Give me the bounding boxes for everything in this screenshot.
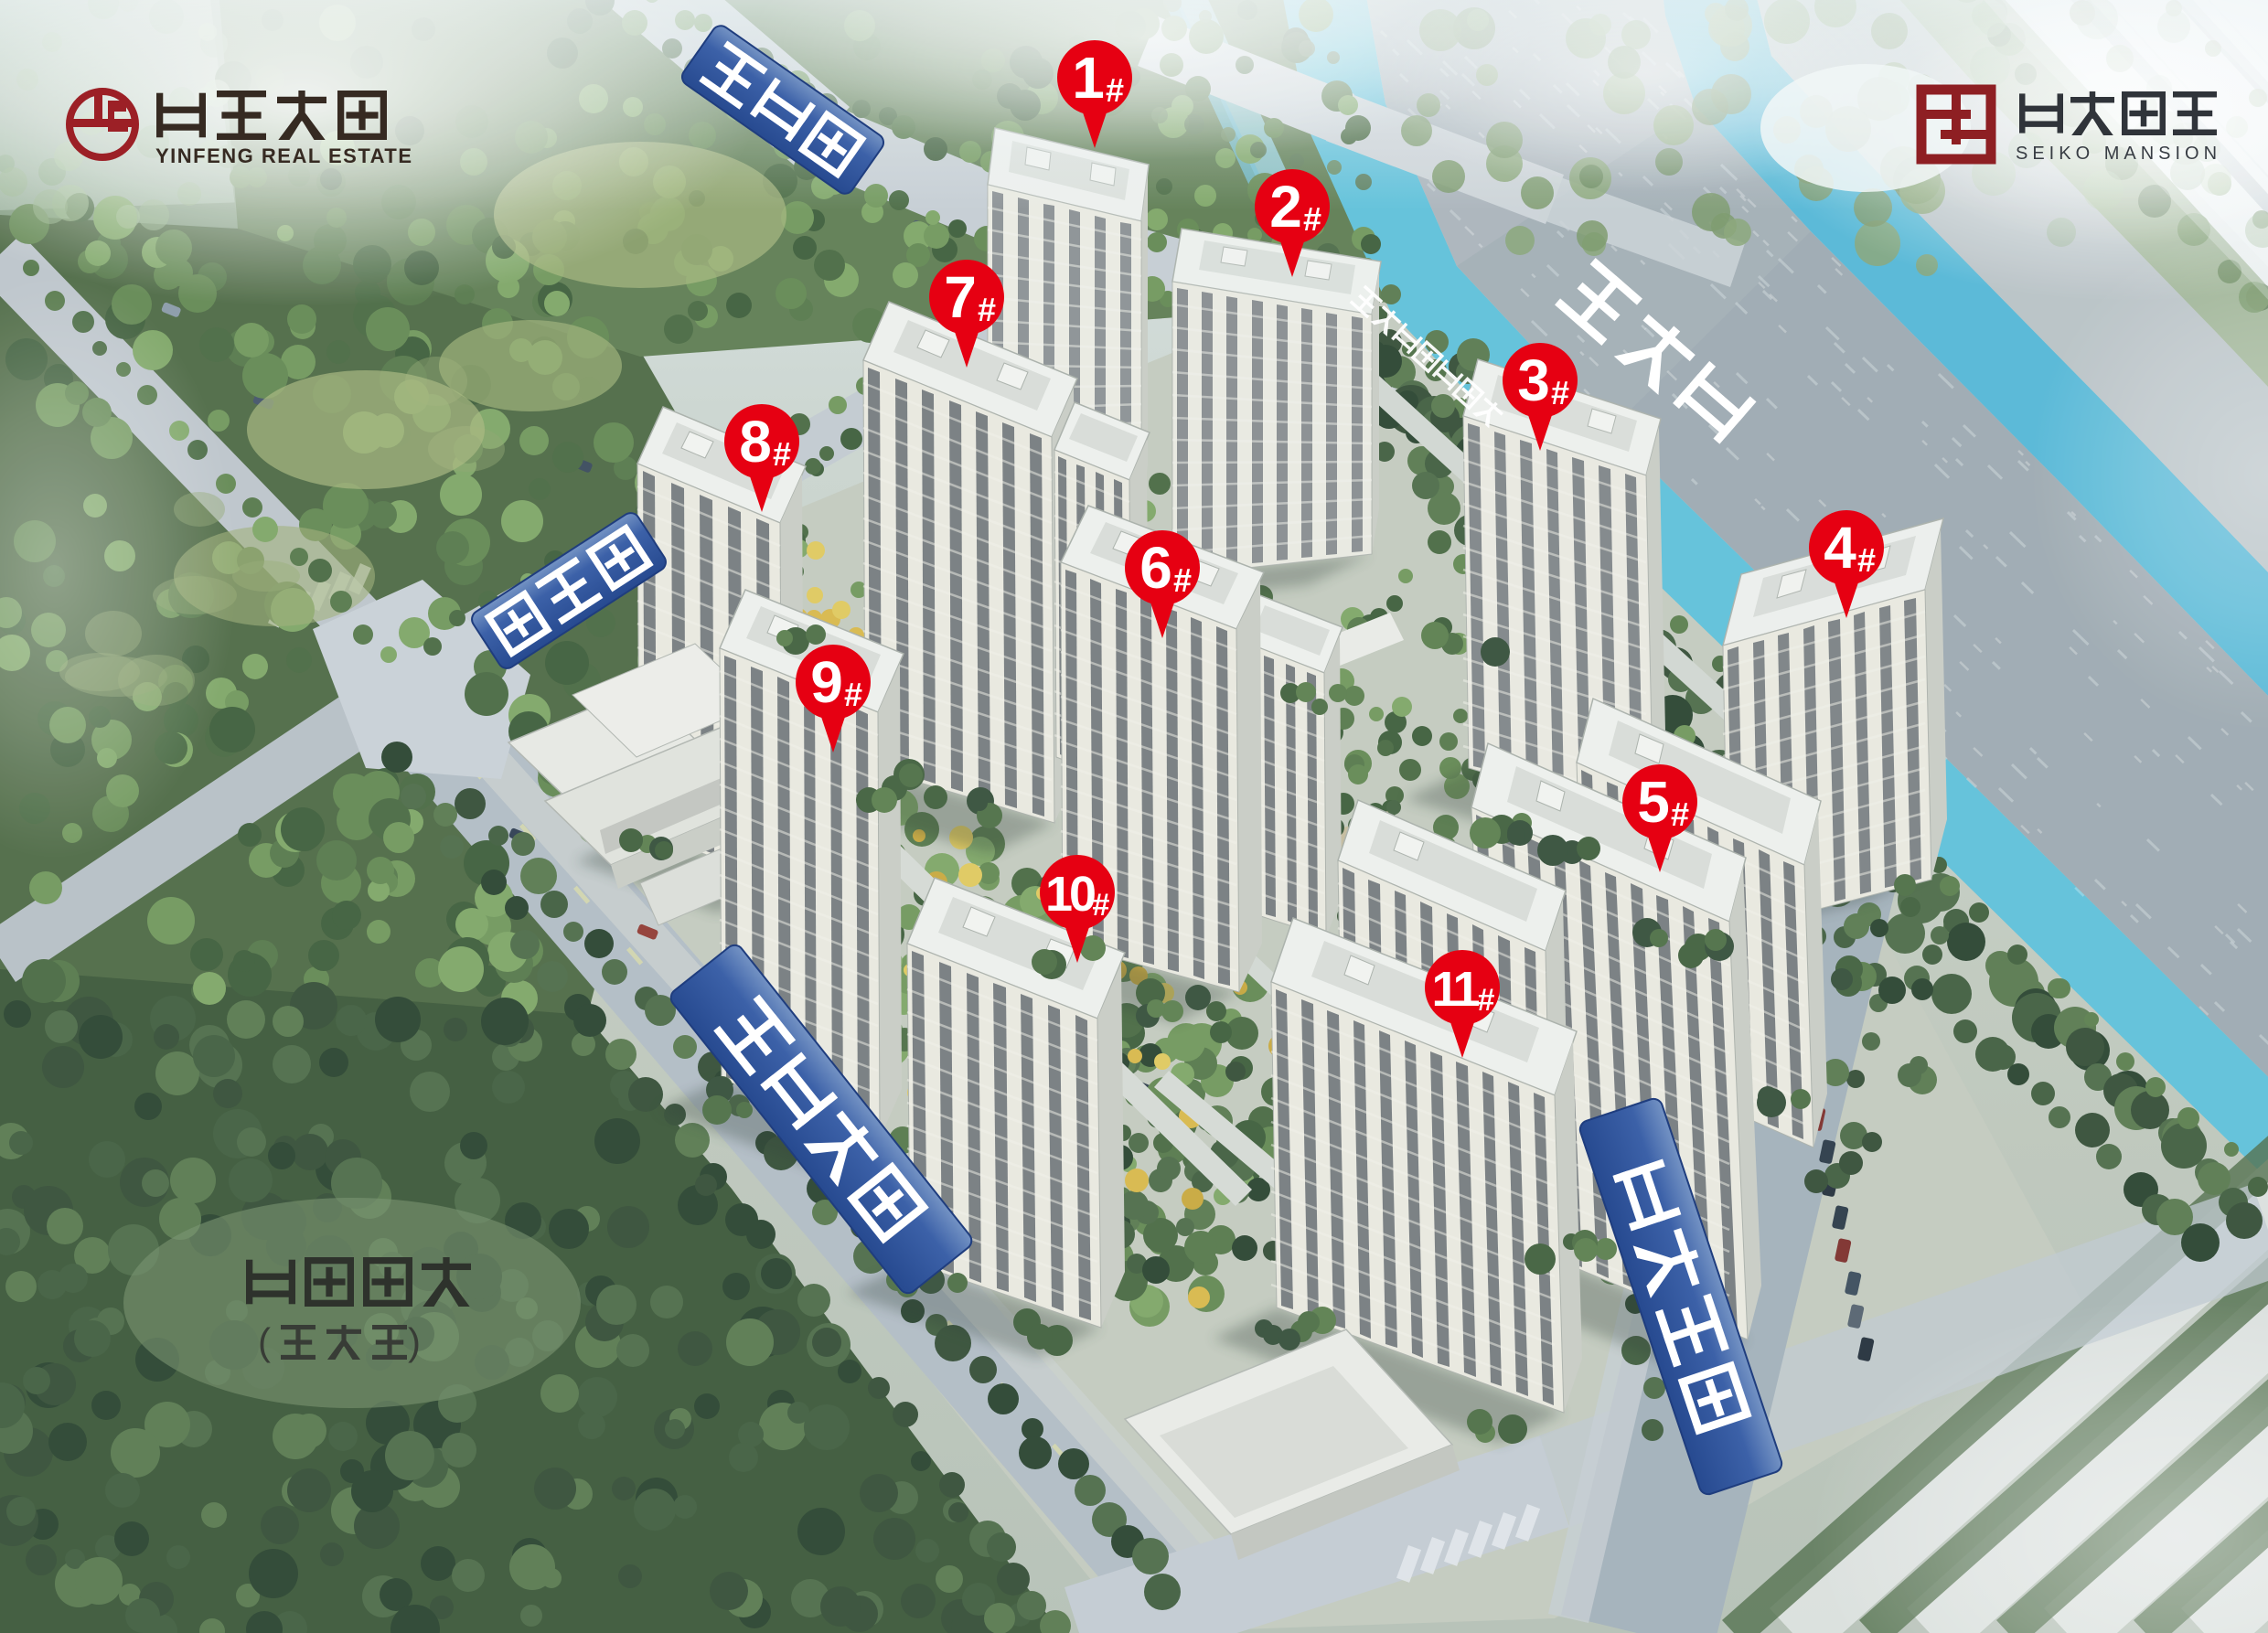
svg-text:8: 8 <box>739 409 772 475</box>
svg-text:11: 11 <box>1431 962 1479 1017</box>
svg-text:#: # <box>1106 71 1124 109</box>
svg-text:10: 10 <box>1045 867 1095 922</box>
svg-text:#: # <box>773 435 791 473</box>
svg-text:4: 4 <box>1824 515 1856 581</box>
svg-text:1: 1 <box>1072 45 1105 111</box>
svg-text:2: 2 <box>1269 174 1302 240</box>
svg-text:SEIKO MANSION: SEIKO MANSION <box>2016 144 2221 164</box>
svg-text:9: 9 <box>810 649 843 715</box>
svg-text:#: # <box>1551 374 1569 411</box>
svg-text:#: # <box>978 291 996 328</box>
svg-text:#: # <box>1173 561 1192 599</box>
svg-text:): ) <box>408 1320 421 1363</box>
svg-text:#: # <box>1303 200 1321 238</box>
svg-text:#: # <box>844 676 862 713</box>
svg-text:7: 7 <box>944 264 977 330</box>
svg-text:5: 5 <box>1637 769 1670 835</box>
svg-text:(: ( <box>258 1320 271 1363</box>
svg-text:YINFENG REAL ESTATE: YINFENG REAL ESTATE <box>155 144 413 167</box>
svg-text:#: # <box>1478 983 1495 1018</box>
svg-text:6: 6 <box>1139 535 1172 601</box>
svg-text:#: # <box>1857 541 1876 579</box>
svg-text:#: # <box>1671 795 1689 833</box>
svg-text:#: # <box>1093 888 1110 923</box>
svg-text:3: 3 <box>1517 347 1550 413</box>
